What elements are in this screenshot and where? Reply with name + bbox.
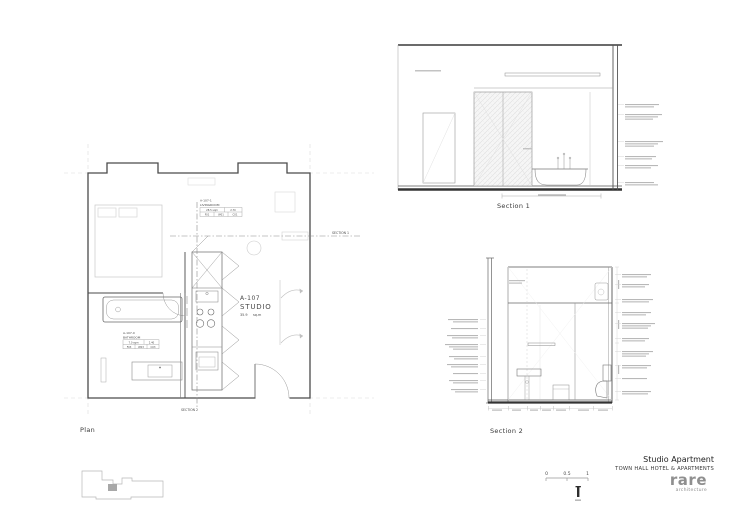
- annotation-notes-left: [445, 319, 486, 392]
- room-height: 2.40: [149, 340, 155, 344]
- scalebar: 0 0.5 1: [540, 466, 610, 511]
- unit-location-marker: [108, 484, 117, 491]
- scale-tick-label: 0: [545, 471, 548, 477]
- annotation-notes: [618, 104, 663, 185]
- section-2-label: Section 2: [490, 427, 523, 435]
- annotation-notes-right: [615, 274, 655, 394]
- section-1-drawing: [395, 38, 730, 218]
- left-wall-cut: [486, 258, 494, 403]
- door-elevation: [423, 113, 455, 183]
- unit-name: STUDIO: [240, 303, 272, 311]
- logo-subtext: architecture: [670, 488, 707, 493]
- section-1-marker-label: SECTION 1: [332, 231, 349, 235]
- plan-label: Plan: [80, 426, 95, 434]
- kitchen-dimension-text: [187, 296, 188, 328]
- unit-area-unit: sq.m: [253, 313, 262, 317]
- room-area: 7.0 sqm: [128, 340, 139, 344]
- room-area: 28.5 sqm: [206, 208, 218, 212]
- finish-floor: F01: [205, 213, 210, 217]
- bathtub-section: [532, 169, 588, 185]
- unit-area: 35.9: [240, 313, 248, 317]
- plan-drawing: SECTION 1 SECTION 2 A-107-1 LIVINGROOM 2…: [60, 140, 380, 420]
- curtain-rail: [505, 73, 600, 76]
- scale-tick-label: 1: [586, 471, 589, 477]
- finish-ceiling: C03: [151, 345, 156, 349]
- right-dimension-strip: [615, 267, 619, 400]
- finish-wall: W03: [138, 345, 144, 349]
- keyplan-drawing: [70, 460, 180, 505]
- room-height: 2.70: [230, 208, 236, 212]
- bottom-dimension: [502, 194, 601, 199]
- scale-marker: [575, 486, 581, 501]
- section-1-label: Section 1: [497, 202, 530, 210]
- logo-wordmark: rare: [670, 473, 707, 487]
- kitchen-cabinets: [192, 252, 222, 390]
- wash-basin: [517, 369, 541, 400]
- inline-notes: [509, 280, 525, 284]
- finish-ceiling: C01: [233, 213, 238, 217]
- room-code: A-107-1: [200, 199, 212, 203]
- architect-logo: rare architecture: [670, 473, 707, 493]
- project-title: Studio Apartment: [615, 455, 714, 464]
- room-name: BATHROOM: [123, 335, 141, 339]
- mirror-cabinet: [595, 283, 608, 300]
- floor-unit: [553, 385, 569, 400]
- scale-tick-label: 0.5: [563, 471, 570, 477]
- bottom-dimension-row: [488, 406, 612, 411]
- finish-wall: W01: [218, 213, 224, 217]
- finish-floor: F03: [127, 345, 132, 349]
- section-2-marker-label: SECTION 2: [181, 408, 198, 412]
- title-block: Studio Apartment TOWN HALL HOTEL & APART…: [615, 455, 714, 472]
- room-name: LIVINGROOM: [200, 203, 220, 207]
- bath-taps: [557, 153, 571, 169]
- unit-code: A-107: [240, 295, 260, 302]
- section-2-drawing: [430, 245, 730, 435]
- drawing-sheet: SECTION 1 SECTION 2 A-107-1 LIVINGROOM 2…: [0, 0, 731, 514]
- building-footprint: [82, 471, 163, 499]
